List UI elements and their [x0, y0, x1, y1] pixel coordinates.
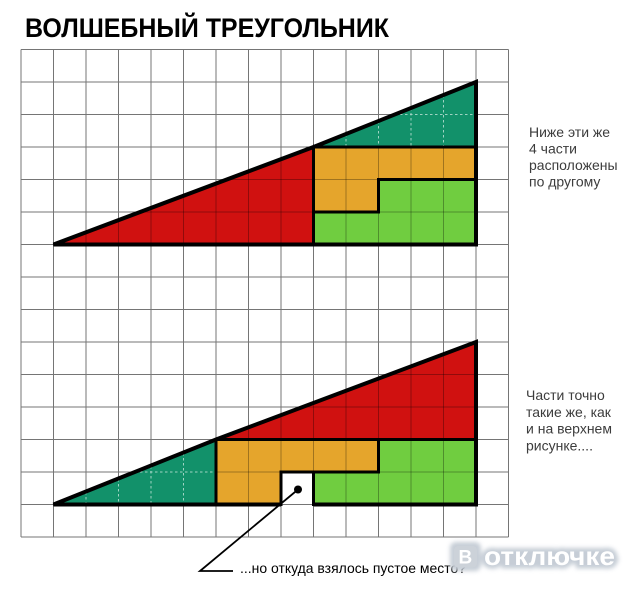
svg-text:отключке: отключке: [484, 541, 615, 571]
svg-text:такие же, как: такие же, как: [526, 404, 612, 420]
svg-text:рисунке....: рисунке....: [526, 437, 593, 453]
svg-text:и на верхнем: и на верхнем: [526, 421, 612, 437]
svg-text:по другому: по другому: [529, 173, 600, 189]
svg-text:расположены: расположены: [529, 157, 618, 173]
svg-text:ВОЛШЕБНЫЙ ТРЕУГОЛЬНИК: ВОЛШЕБНЫЙ ТРЕУГОЛЬНИК: [25, 13, 390, 43]
svg-text:В: В: [459, 548, 473, 569]
svg-text:Части точно: Части точно: [526, 387, 605, 403]
svg-text:4 части: 4 части: [529, 140, 577, 156]
svg-text:...но откуда взялось пустое ме: ...но откуда взялось пустое место?: [240, 560, 466, 576]
svg-text:Ниже эти же: Ниже эти же: [529, 124, 610, 140]
